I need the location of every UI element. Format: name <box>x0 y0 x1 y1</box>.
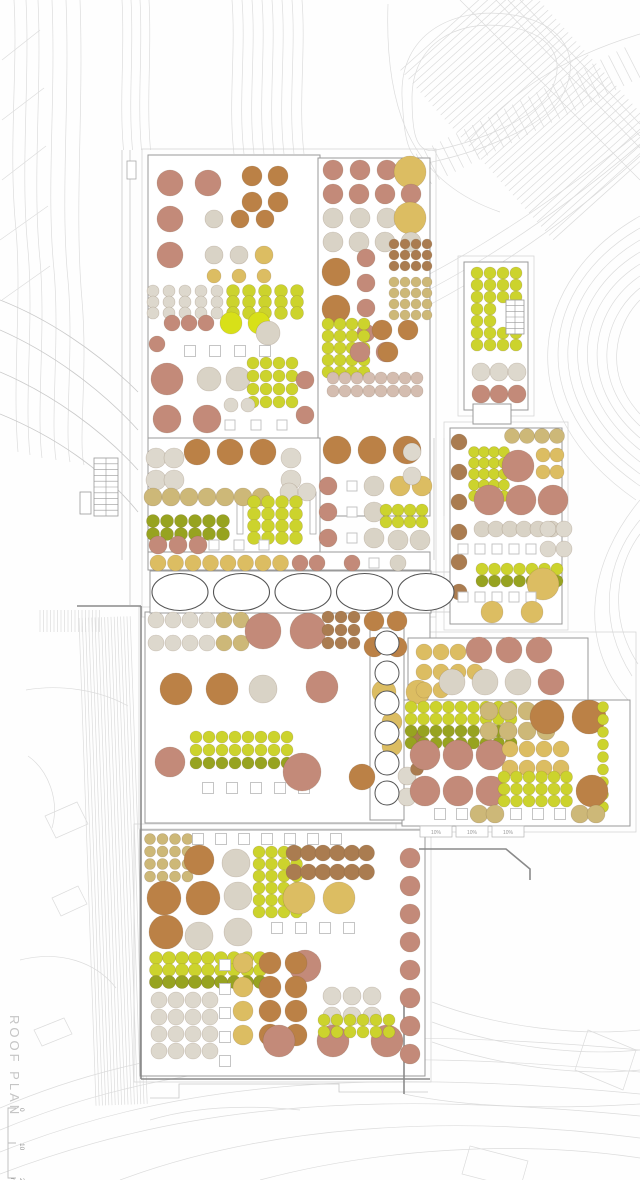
scale-label: 0 <box>18 1108 25 1112</box>
svg-text:10%: 10% <box>503 830 514 836</box>
drawing-title: ROOF PLAN <box>7 1015 22 1117</box>
svg-text:10%: 10% <box>467 830 478 836</box>
skylight-ellipses <box>152 574 454 611</box>
ramps: 10%10%10% <box>420 826 524 837</box>
svg-text:10%: 10% <box>431 830 442 836</box>
scale-label: 10 <box>18 1143 25 1151</box>
roof-plan-page: 10%10%10%ROOF PLAN01020m <box>0 0 640 1180</box>
roof-plan-drawing: 10%10%10%ROOF PLAN01020m <box>0 0 640 1180</box>
